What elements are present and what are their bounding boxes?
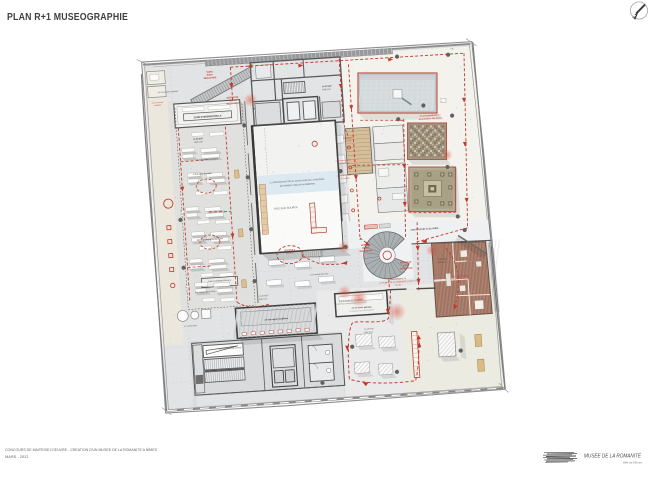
svg-text:PLAN R+1 MUSEOGRAPHIE: PLAN R+1 MUSEOGRAPHIE [7,12,128,23]
svg-text:Ville de Nîmes: Ville de Nîmes [623,461,643,465]
svg-text:MUSÉE DE LA ROMANITÉ: MUSÉE DE LA ROMANITÉ [584,453,641,460]
svg-text:au RDJ: au RDJ [346,140,352,142]
svg-text:modulaire: modulaire [154,103,162,106]
svg-text:EXPO: EXPO [230,100,236,102]
svg-text:CONCOURS DE MAITRISE D'ŒUVRE -: CONCOURS DE MAITRISE D'ŒUVRE - CREATION … [5,447,157,452]
svg-text:MARS - 2012: MARS - 2012 [5,454,28,459]
svg-text:av JC): av JC) [395,284,401,286]
svg-text:EXPO: EXPO [207,74,213,76]
